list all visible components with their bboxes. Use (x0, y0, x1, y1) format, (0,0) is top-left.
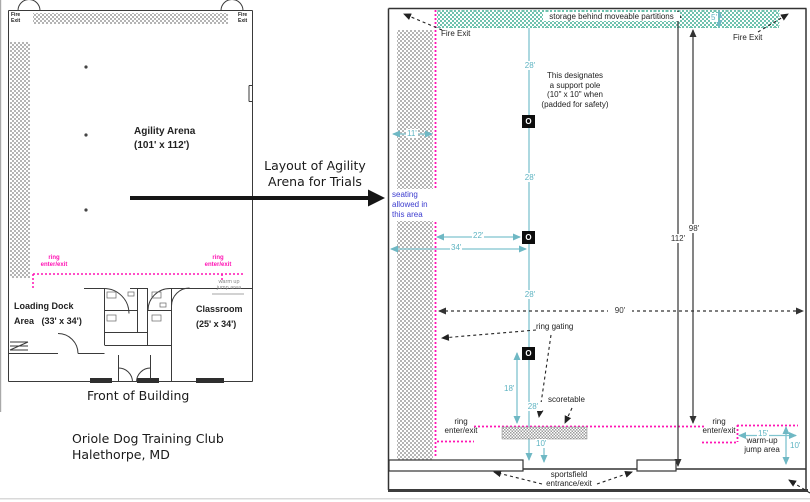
dim-10ft-left: 10' (535, 439, 547, 448)
ring-enter-exit-right: ringenter/exit (200, 255, 236, 269)
facility-layout-diagram: FireExit FireExit Agility Arena(101' x 1… (0, 0, 810, 502)
support-pole-2: O (522, 231, 535, 244)
sportsfield-edge (388, 489, 808, 492)
sportsfield-entrance-label: sportsfieldentrance/exit (538, 470, 600, 488)
support-pole-1: O (522, 115, 535, 128)
linework-layer (0, 0, 810, 502)
seating-strip-hatch (397, 30, 433, 460)
ring-enter-exit-label-right: ringenter/exit (699, 418, 739, 435)
dim-22ft: 22' (472, 231, 484, 240)
dim-112ft: 112' (664, 234, 692, 243)
arena-title: Agility Arena(101' x 112') (134, 125, 195, 153)
classroom-label: Classroom(25' x 34') (196, 302, 243, 332)
black-dimension-lines (439, 11, 803, 466)
dim-28ft-c: 28' (521, 290, 539, 299)
warmup-note-small: warm upjump area (211, 279, 247, 291)
left-plan-top-hatch (33, 13, 228, 24)
ring-enter-exit-left: ringenter/exit (36, 255, 72, 269)
scoretable-label: scoretable (548, 395, 585, 404)
fire-exit-label-right-plan-left: Fire Exit (441, 29, 470, 38)
fire-exit-label-tr: FireExit (238, 13, 247, 24)
left-plan-side-hatch (10, 42, 30, 278)
dim-98ft: 98' (683, 224, 705, 233)
dim-90ft: 90' (608, 306, 632, 315)
dim-34ft: 34' (450, 243, 462, 252)
dim-28ft-b: 28' (521, 173, 539, 182)
scan-edge-left (0, 0, 1, 412)
ring-gating-label: ring gating (536, 322, 573, 331)
fire-exit-label-tl: FireExit (11, 13, 20, 24)
scoretable (502, 427, 587, 439)
front-of-building-caption: Front of Building (87, 388, 189, 403)
support-pole-3: O (522, 347, 535, 360)
dim-18ft: 18' (503, 384, 515, 393)
connector-arrow (130, 190, 385, 207)
dim-11ft: 11' (406, 129, 418, 138)
dim-5ft: 5' (710, 13, 718, 22)
scan-edge-bottom (0, 498, 810, 500)
left-plan-thresholds (90, 378, 224, 383)
dim-10ft-right: 10' (789, 441, 801, 450)
loading-dock-label: Loading DockArea (33' x 34') (14, 299, 82, 329)
seating-note: seatingallowed in this area (390, 189, 438, 221)
fire-exit-label-right-plan-right: Fire Exit (733, 33, 762, 42)
right-plan-ring-gating-lines (436, 10, 799, 457)
club-name: Oriole Dog Training ClubHalethorpe, MD (72, 431, 224, 462)
support-pole-note: This designatesa support pole (10" x 10"… (536, 71, 614, 109)
dim-28ft-a: 28' (521, 61, 539, 70)
sportsfield-door-left (389, 460, 523, 471)
left-plan-pole-dots (84, 65, 87, 211)
sportsfield-door-right (637, 460, 676, 471)
dim-28ft-d: 28' (524, 402, 542, 411)
connector-label: Layout of AgilityArena for Trials (263, 158, 367, 190)
ring-enter-exit-label-left: ringenter/exit (441, 418, 481, 435)
warmup-jump-area-label: warm-upjump area (739, 436, 785, 454)
storage-label: storage behind moveable partitions (543, 12, 680, 21)
